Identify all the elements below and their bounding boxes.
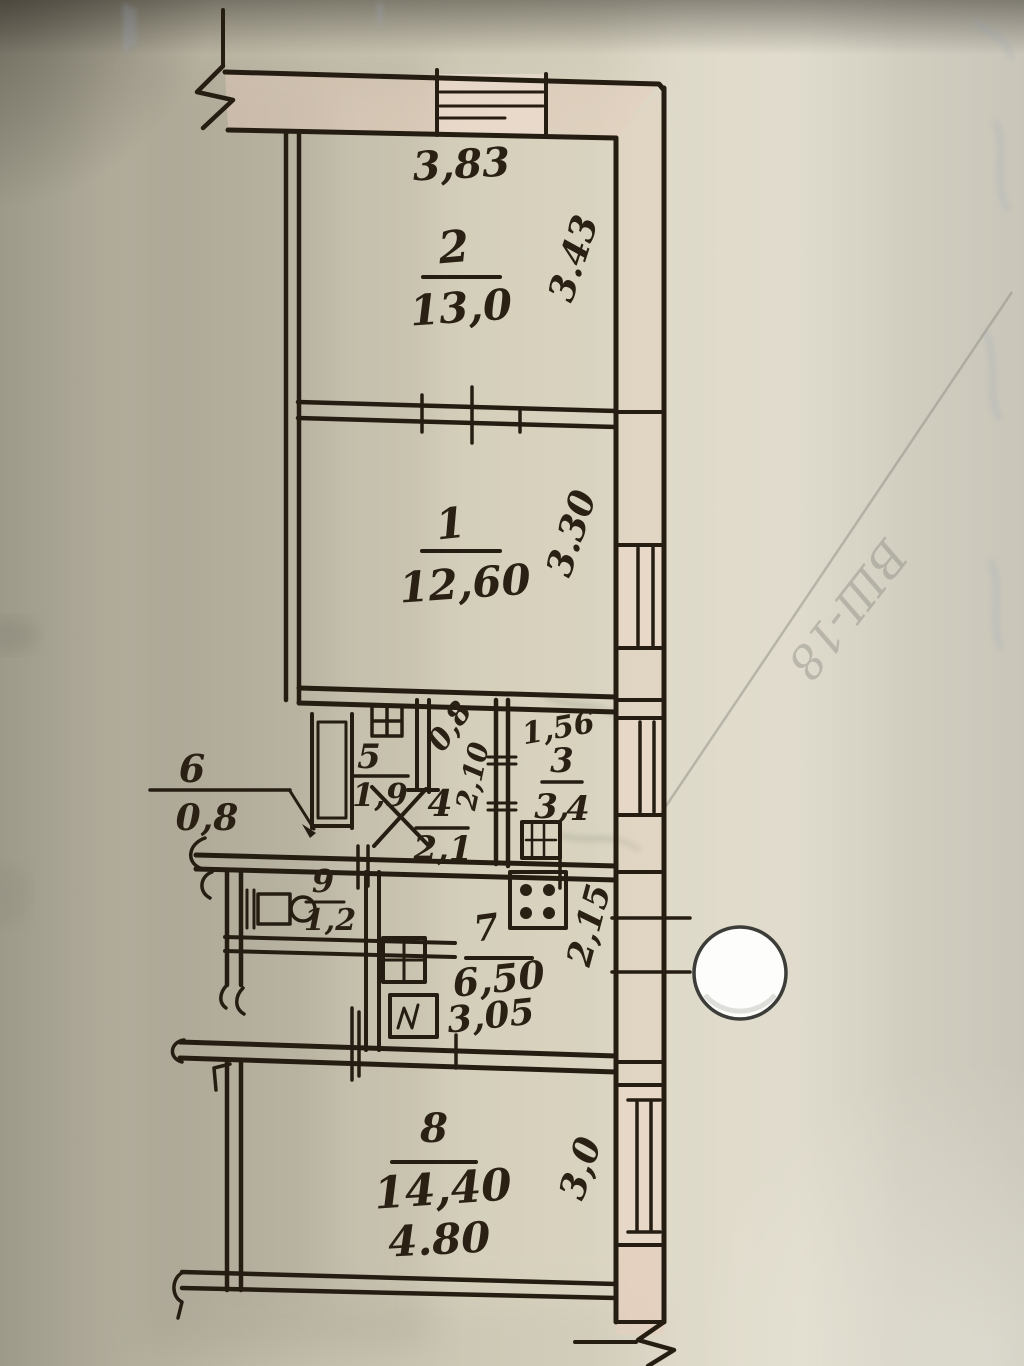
whiteout-circle xyxy=(694,927,786,1019)
room5-area: 1,9 xyxy=(352,776,408,814)
room8-width-dim: 4.80 xyxy=(387,1212,492,1266)
room3-area-left: 3, xyxy=(534,787,570,827)
room9-number: 9 xyxy=(312,862,334,900)
room5-number: 5 xyxy=(357,737,381,777)
room8-number: 8 xyxy=(419,1105,448,1152)
room8-area: 14,40 xyxy=(372,1159,513,1220)
smudge-left-1 xyxy=(0,617,38,653)
window1-fill xyxy=(616,545,664,650)
room6-area: 0,8 xyxy=(176,797,239,839)
room2-number: 2 xyxy=(435,221,471,275)
room4-area: 2,1 xyxy=(412,829,472,869)
room3-area-corrected: 4 xyxy=(566,789,590,829)
floorplan-photo: ВШ-18 xyxy=(0,0,1024,1366)
window3-fill xyxy=(616,1085,664,1245)
pencil-diagonal-line xyxy=(660,292,1012,815)
dim-top-width: 3,83 xyxy=(411,139,511,191)
room4-number: 4 xyxy=(427,783,452,825)
room9-area: 1,2 xyxy=(304,903,356,938)
room1-area: 12,60 xyxy=(398,555,533,613)
room2-area: 13,0 xyxy=(408,280,513,336)
smudge-left-2 xyxy=(0,865,30,925)
room1-number: 1 xyxy=(433,498,467,550)
room6-number: 6 xyxy=(179,746,205,791)
room3-number: 3 xyxy=(550,741,574,781)
blue-bleed-right-edge xyxy=(975,20,1012,650)
floorplan-drawing: ВШ-18 xyxy=(0,0,1024,1366)
blue-bleed-strokes xyxy=(126,2,380,52)
